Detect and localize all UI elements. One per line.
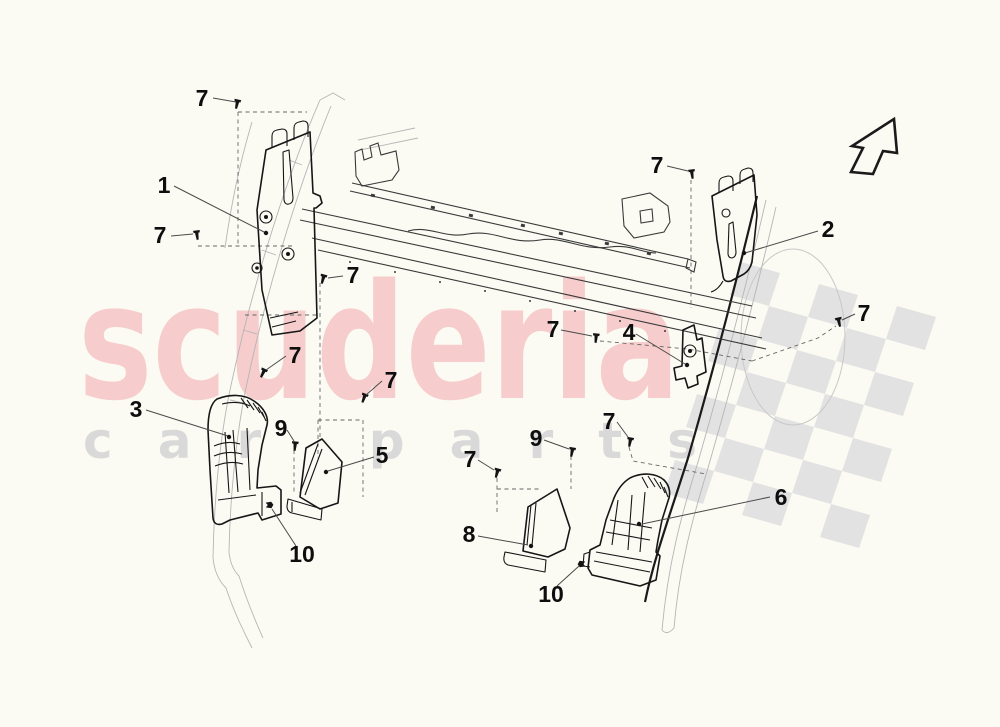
callout-label: 8 [463,521,476,547]
up-right-arrow-icon [851,119,897,174]
callout-8: 8 [463,521,534,548]
screw-icon [568,447,576,457]
callout-label: 3 [130,396,143,422]
callout-7a: 7 [196,85,236,111]
checkered-flag-icon [664,262,936,548]
part-8-plate [504,489,570,572]
screw-icon [626,437,634,447]
callout-label: 4 [623,319,636,345]
callout-1: 1 [158,172,269,235]
callout-label: 9 [275,415,288,441]
callout-label: 7 [289,342,302,368]
callout-label: 7 [651,152,664,178]
callout-label: 2 [822,216,835,242]
watermark: scuderia car parts [78,249,936,548]
callout-label: 5 [376,442,389,468]
callout-7b: 7 [154,222,193,248]
callout-label: 6 [775,484,788,510]
callout-label: 7 [547,316,560,342]
callout-label: 10 [538,581,564,607]
callout-label: 1 [158,172,171,198]
callout-label: 7 [858,300,871,326]
callout-label: 10 [289,541,315,567]
callout-10a: 10 [272,509,315,567]
callout-label: 7 [464,446,477,472]
callout-label: 9 [530,425,543,451]
screw-icon [291,441,299,451]
callout-label: 7 [385,367,398,393]
parts-diagram-page: scuderia car parts [0,0,1000,727]
parts-diagram-canvas: scuderia car parts [0,0,1000,727]
screw-icon [193,230,201,240]
clip-icon [266,502,274,508]
callout-label: 7 [154,222,167,248]
screw-icon [233,99,242,110]
callout-label: 7 [196,85,209,111]
callout-label: 7 [603,408,616,434]
screw-icon [688,169,696,179]
part-6-shield [583,474,670,586]
watermark-brand-text: scuderia [78,249,680,436]
callout-7i: 7 [651,152,688,178]
callout-label: 7 [347,262,360,288]
